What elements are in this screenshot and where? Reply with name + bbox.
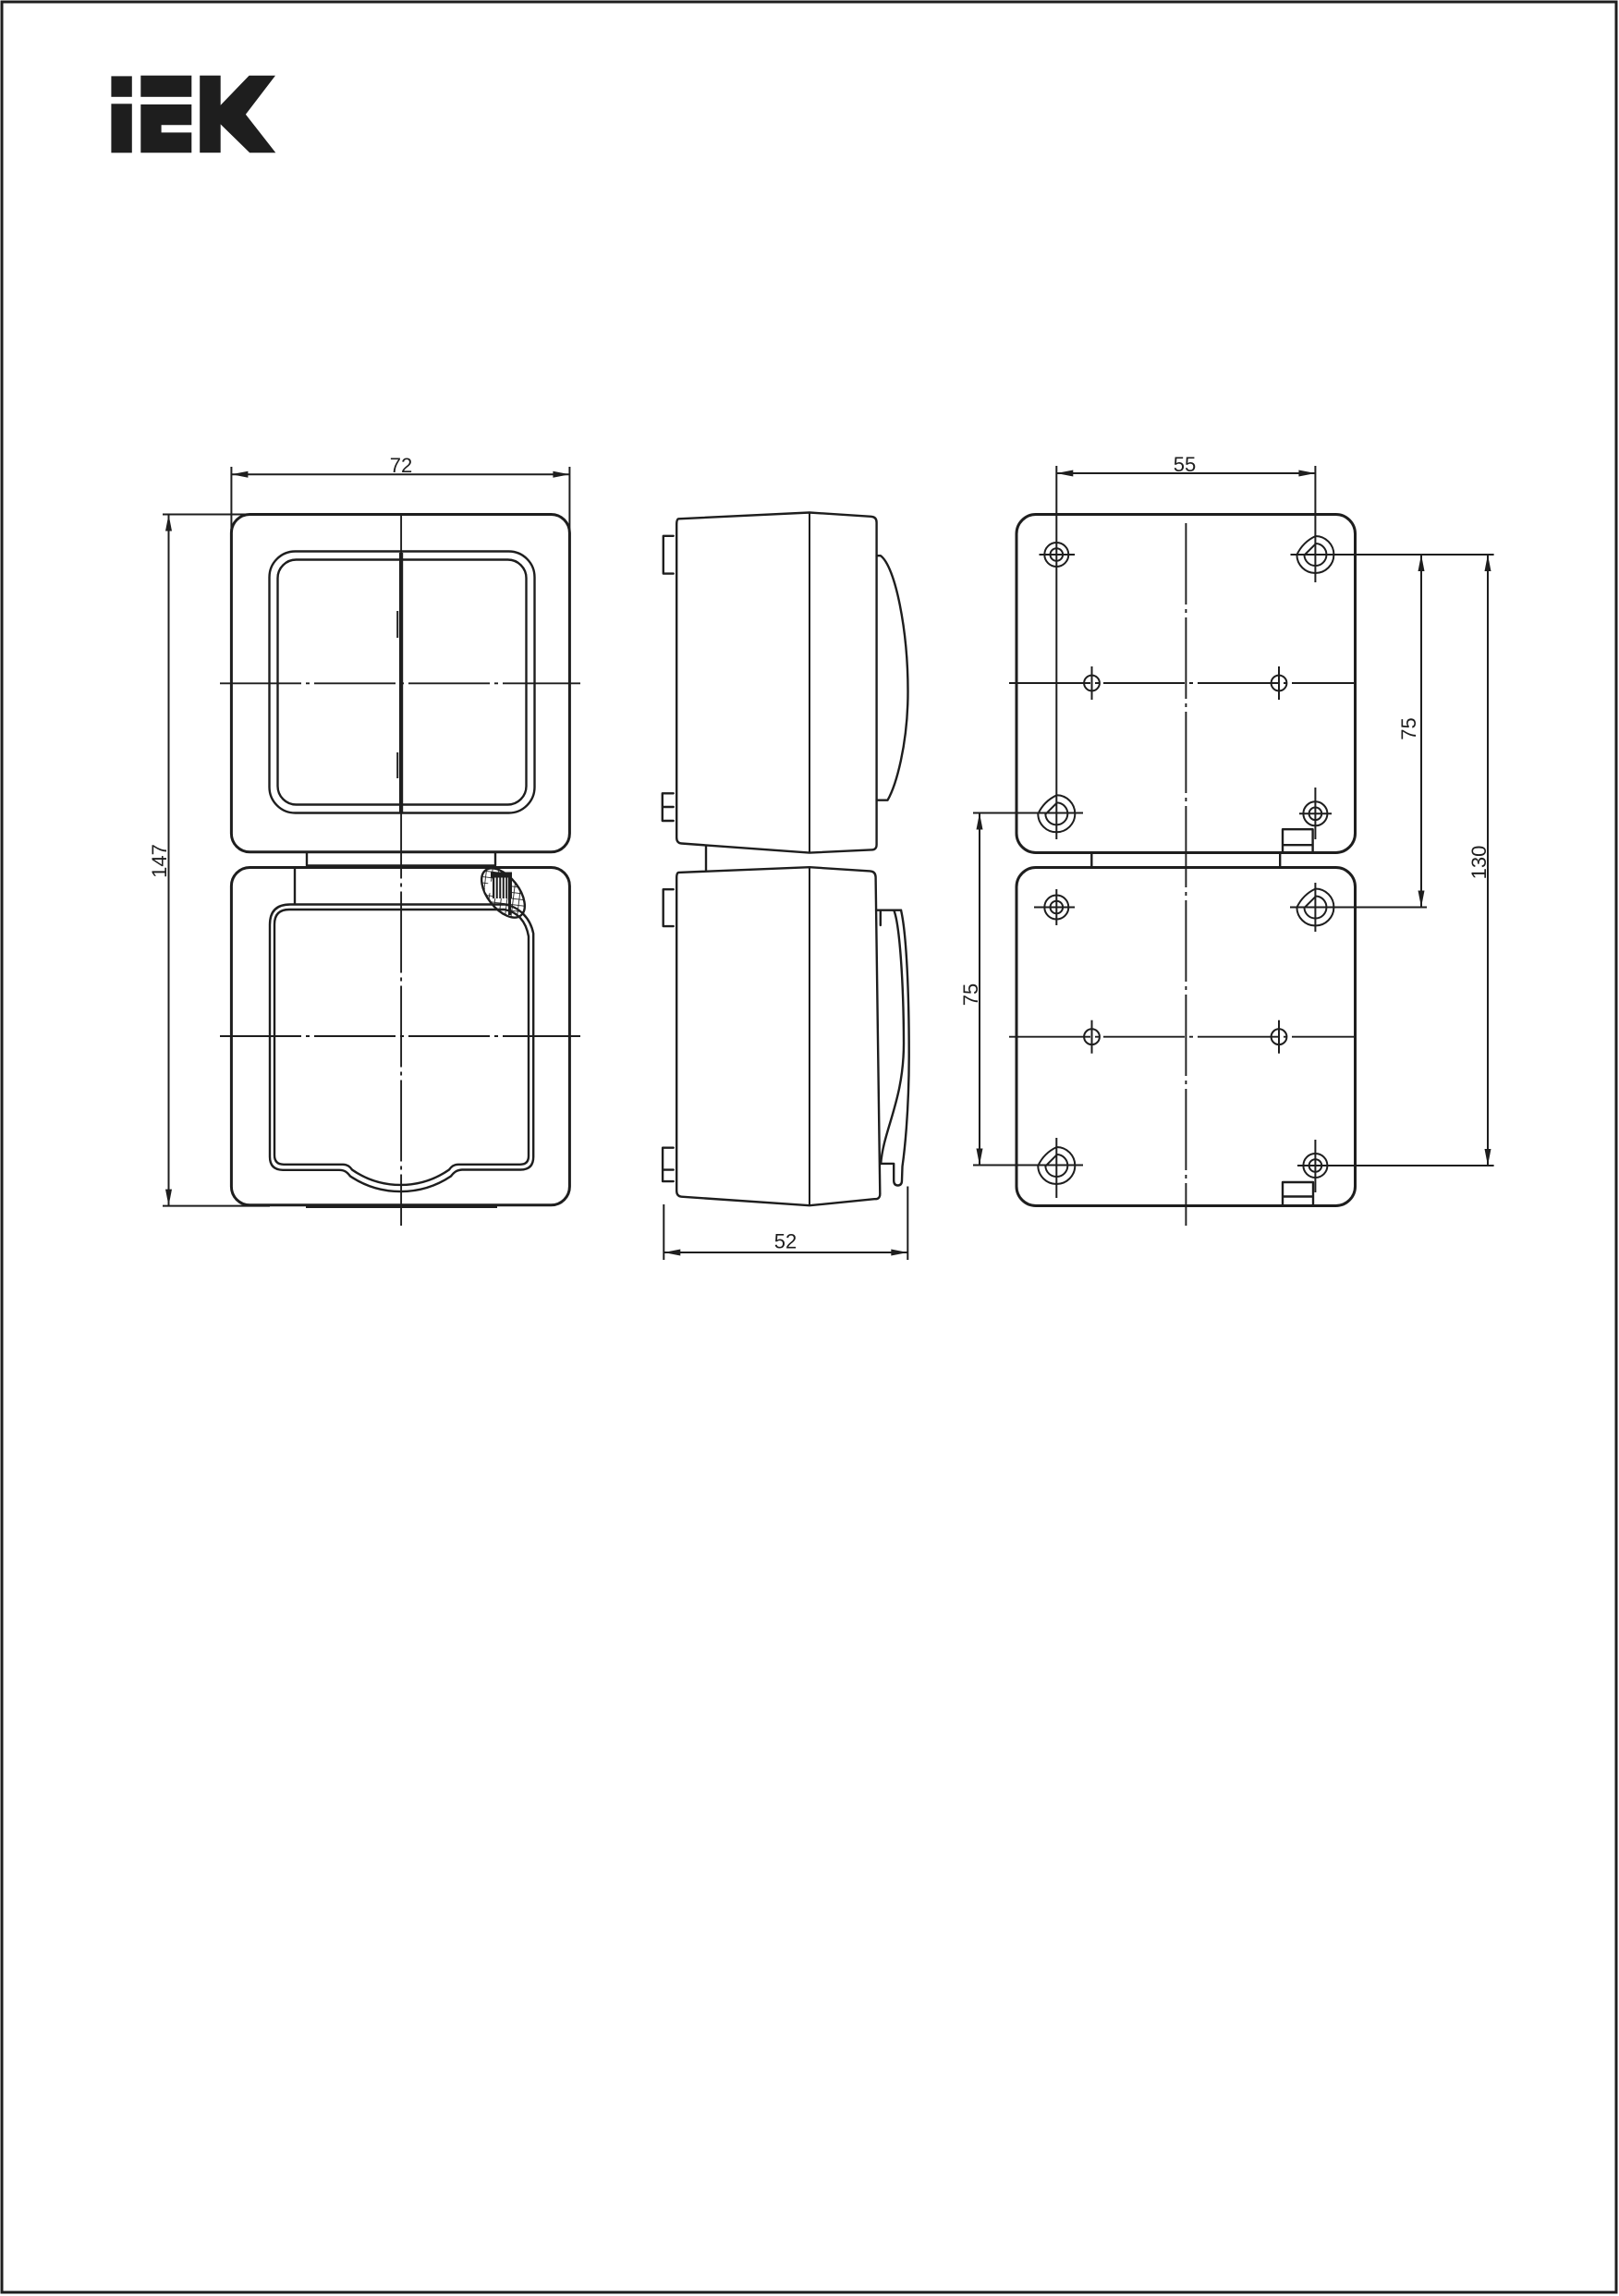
svg-text:75: 75: [1397, 717, 1420, 739]
svg-text:147: 147: [148, 844, 171, 878]
svg-text:75: 75: [959, 983, 982, 1006]
svg-text:130: 130: [1467, 846, 1491, 880]
svg-text:52: 52: [774, 1230, 797, 1253]
svg-text:72: 72: [390, 454, 412, 477]
svg-text:55: 55: [1174, 453, 1196, 476]
